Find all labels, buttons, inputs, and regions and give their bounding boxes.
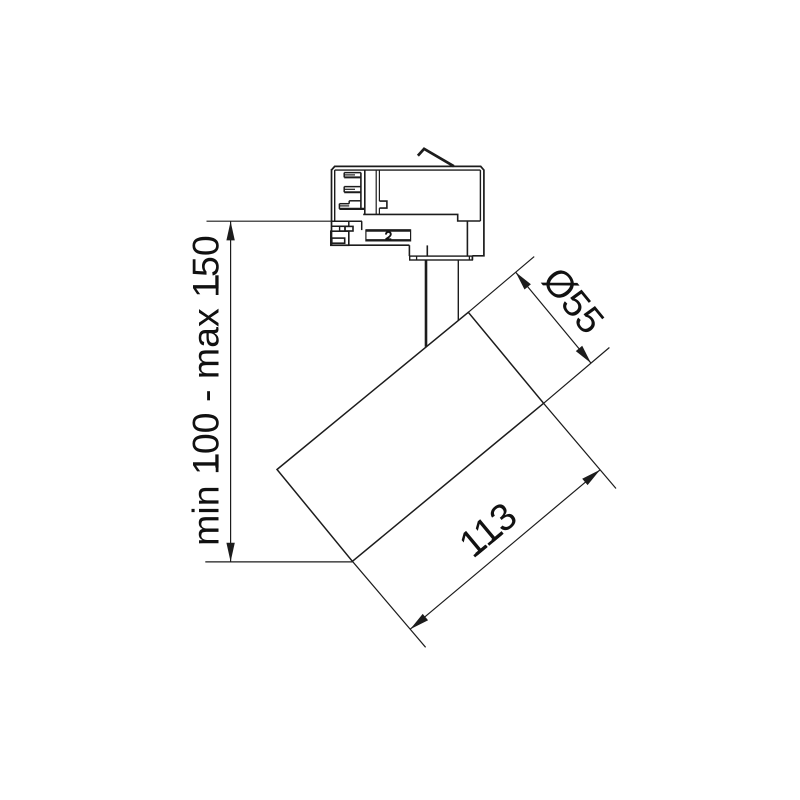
- svg-text:min 100 - max 150: min 100 - max 150: [185, 235, 227, 546]
